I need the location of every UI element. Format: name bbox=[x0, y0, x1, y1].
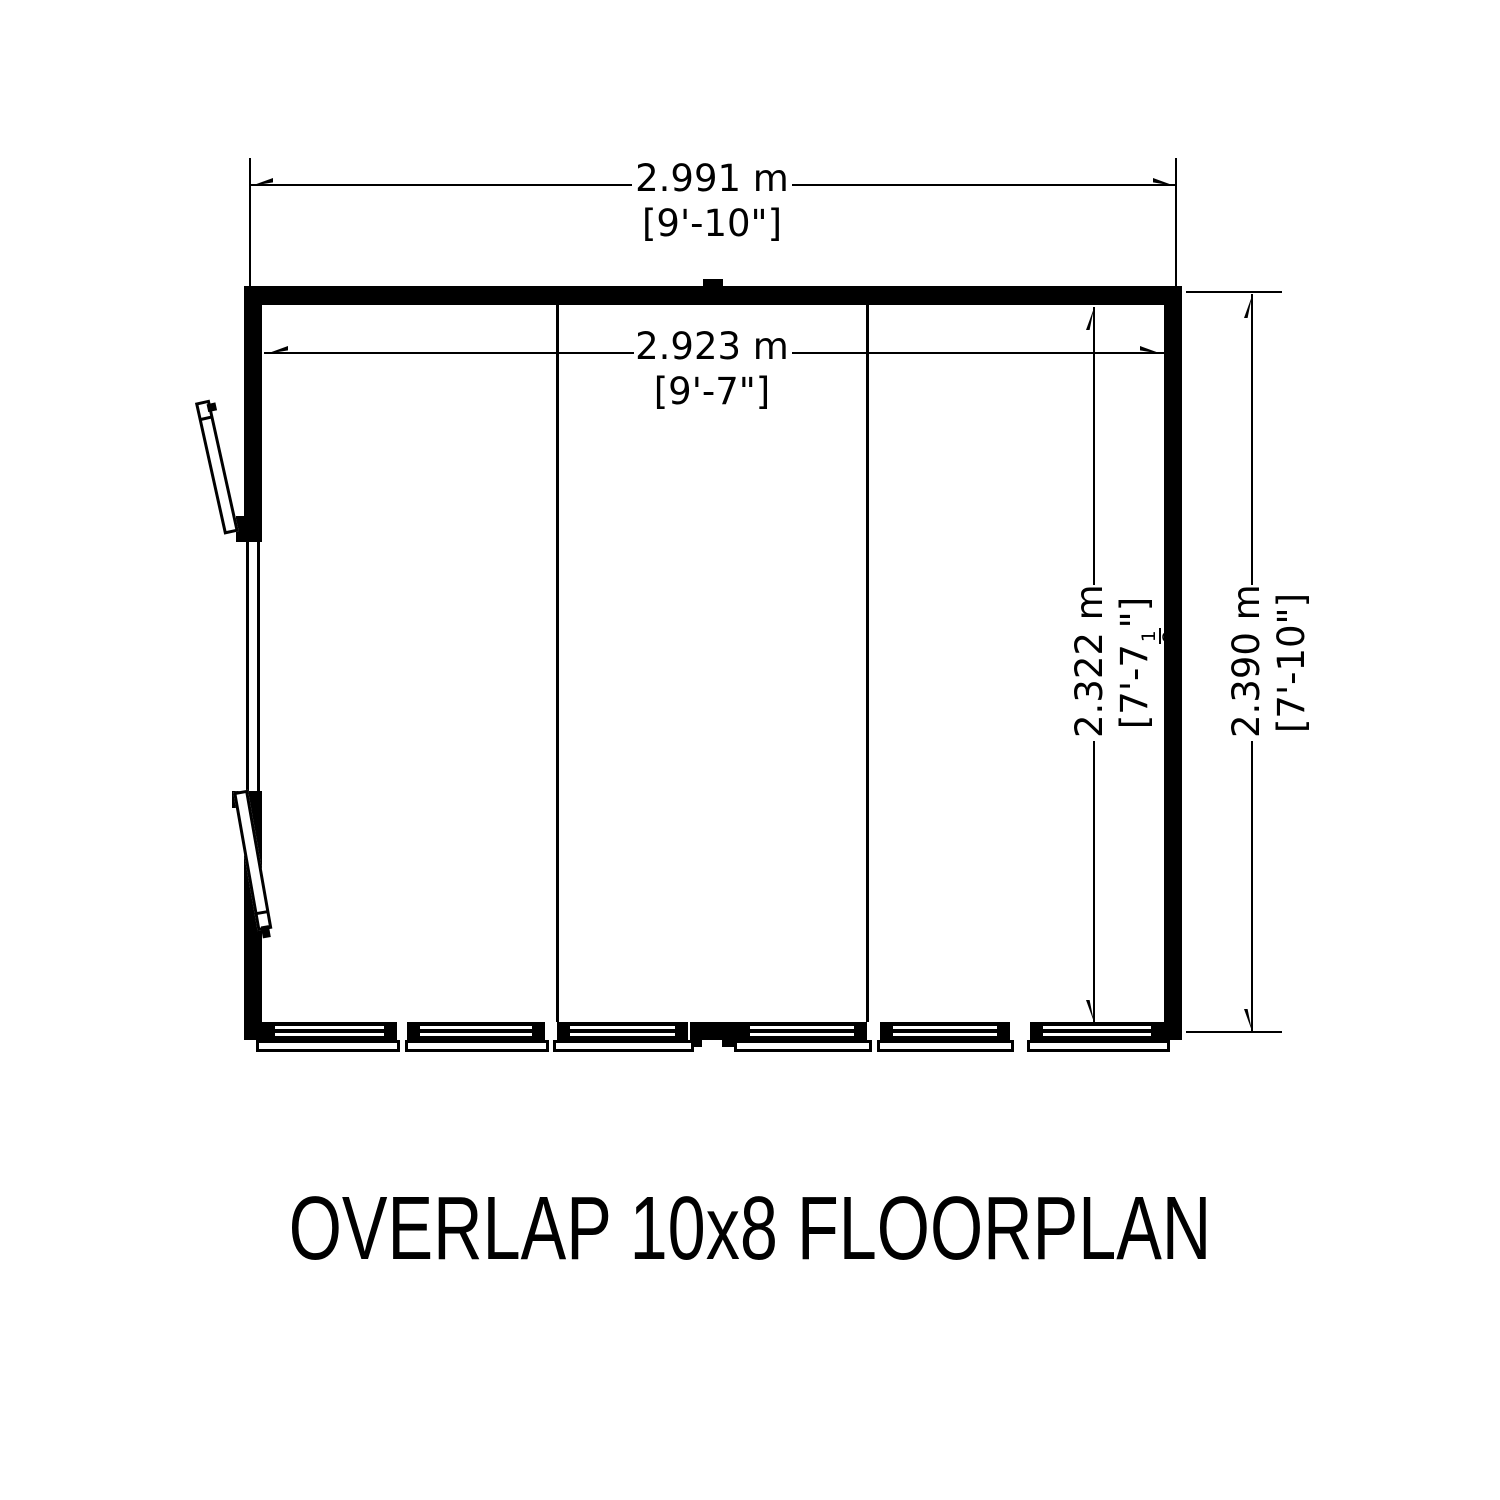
label-internal-width-metric: 2.923 m bbox=[562, 324, 862, 369]
extension-line-top-left bbox=[249, 158, 251, 286]
label-external-depth: 2.390 m [7'-10"] bbox=[1224, 588, 1314, 738]
bottom-wall-plank-2 bbox=[407, 1022, 545, 1040]
label-external-width-metric: 2.991 m bbox=[562, 156, 862, 201]
label-internal-depth-imperial: [7'-712"] bbox=[1112, 588, 1181, 738]
extension-line-right-top bbox=[1186, 291, 1282, 293]
label-external-width-imperial: [9'-10"] bbox=[562, 201, 862, 246]
left-wall-upper bbox=[244, 286, 262, 542]
top-wall-notch bbox=[703, 279, 723, 287]
bottom-wall-plank-3 bbox=[557, 1022, 688, 1040]
floor-bearer-6 bbox=[1027, 1040, 1170, 1052]
top-wall bbox=[244, 286, 1182, 305]
door-hinge-upper bbox=[236, 516, 262, 542]
dim-line-internal-depth-bottom bbox=[1093, 741, 1095, 1022]
dim-line-external-depth-top bbox=[1251, 294, 1253, 585]
floor-bearer-3 bbox=[553, 1040, 694, 1052]
floor-bearer-5 bbox=[877, 1040, 1014, 1052]
bottom-wall-plank-1 bbox=[262, 1022, 397, 1040]
door-leaf-upper-hinge-tab bbox=[207, 402, 218, 412]
floorplan: 2.991 m [9'-10"] 2.923 m [9'-7"] 2.322 m… bbox=[0, 0, 1500, 1500]
half-inch-fraction: 12 bbox=[1140, 628, 1181, 644]
bottom-wall-joint bbox=[690, 1022, 737, 1040]
floor-bearer-2 bbox=[405, 1040, 549, 1052]
label-external-depth-imperial: [7'-10"] bbox=[1269, 588, 1314, 738]
door-threshold-outer-line bbox=[246, 542, 249, 791]
door-leaf-upper bbox=[195, 400, 239, 535]
floor-bearer-1 bbox=[256, 1040, 400, 1052]
dim-line-internal-depth-top bbox=[1093, 307, 1095, 585]
bottom-wall-plank-4 bbox=[737, 1022, 867, 1040]
bottom-wall-plank-6 bbox=[1030, 1022, 1164, 1040]
extension-line-top-right bbox=[1175, 158, 1177, 286]
label-internal-depth-metric: 2.322 m bbox=[1067, 588, 1112, 738]
bottom-wall-plank-5 bbox=[880, 1022, 1010, 1040]
floor-panel-divider-2 bbox=[866, 305, 869, 1022]
label-internal-width: 2.923 m [9'-7"] bbox=[562, 324, 862, 414]
door-leaf-lower-edge-line bbox=[256, 910, 267, 915]
floor-bearer-4 bbox=[734, 1040, 872, 1052]
door-leaf-upper-edge-line bbox=[200, 416, 211, 421]
extension-line-right-bottom bbox=[1186, 1031, 1282, 1033]
floorplan-title: OVERLAP 10x8 FLOORPLAN bbox=[180, 1182, 1320, 1277]
label-internal-width-imperial: [9'-7"] bbox=[562, 369, 862, 414]
dim-line-external-depth-bottom bbox=[1251, 741, 1253, 1032]
label-external-depth-metric: 2.390 m bbox=[1224, 588, 1269, 738]
floor-panel-divider-1 bbox=[556, 305, 559, 1022]
door-leaf-lower-handle-tab bbox=[261, 925, 271, 938]
label-external-width: 2.991 m [9'-10"] bbox=[562, 156, 862, 246]
door-threshold-inner-line bbox=[257, 542, 260, 791]
label-internal-depth: 2.322 m [7'-712"] bbox=[1067, 588, 1157, 738]
